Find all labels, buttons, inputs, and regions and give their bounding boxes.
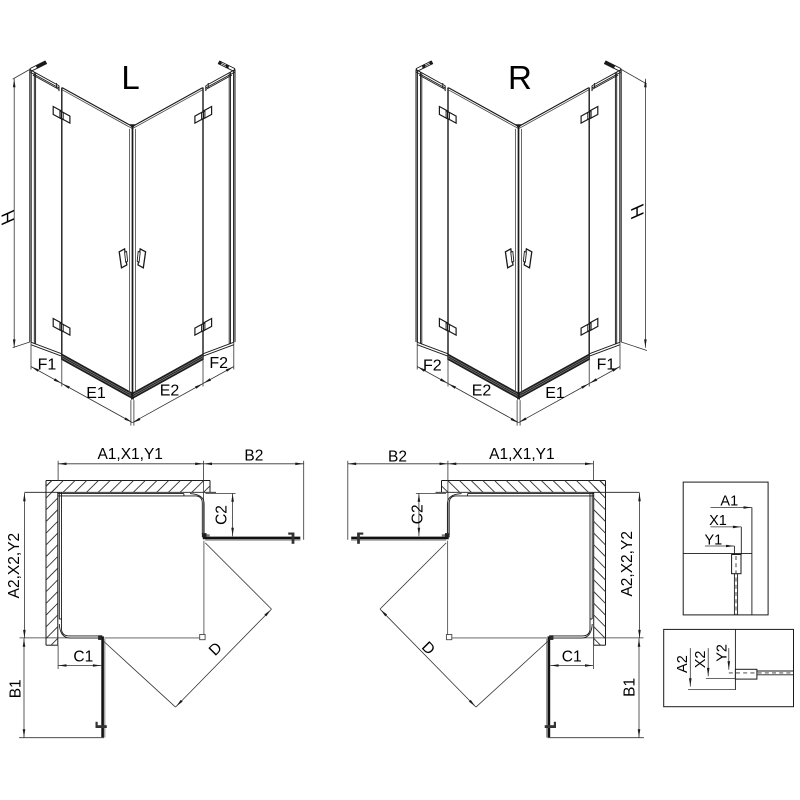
svg-text:E1: E1 (545, 385, 565, 402)
svg-text:Y2: Y2 (715, 644, 731, 662)
svg-text:E1: E1 (86, 385, 106, 402)
svg-text:A2,X2,Y2: A2,X2,Y2 (6, 533, 23, 599)
svg-text:L: L (121, 59, 139, 96)
svg-text:F1: F1 (38, 357, 57, 374)
svg-text:E2: E2 (160, 382, 180, 399)
svg-text:F2: F2 (423, 358, 442, 375)
svg-text:F1: F1 (597, 356, 616, 373)
svg-text:C1: C1 (562, 648, 582, 665)
svg-text:A1,X1,Y1: A1,X1,Y1 (489, 446, 555, 463)
svg-text:B2: B2 (244, 448, 263, 465)
svg-text:A1,X1,Y1: A1,X1,Y1 (97, 446, 163, 463)
svg-text:E2: E2 (472, 383, 492, 400)
svg-text:X2: X2 (693, 651, 709, 669)
svg-text:R: R (508, 59, 532, 96)
svg-text:A2,X2,Y2: A2,X2,Y2 (619, 531, 636, 597)
svg-text:B1: B1 (622, 678, 639, 697)
svg-text:C2: C2 (409, 504, 426, 524)
svg-text:C2: C2 (214, 505, 231, 525)
svg-text:F2: F2 (209, 355, 228, 372)
svg-text:C1: C1 (73, 648, 93, 665)
svg-text:B1: B1 (7, 679, 24, 698)
svg-text:A2: A2 (675, 655, 691, 673)
svg-text:X1: X1 (709, 513, 727, 529)
svg-text:Y1: Y1 (705, 532, 723, 548)
svg-text:A1: A1 (720, 493, 738, 509)
svg-text:B2: B2 (388, 448, 407, 465)
